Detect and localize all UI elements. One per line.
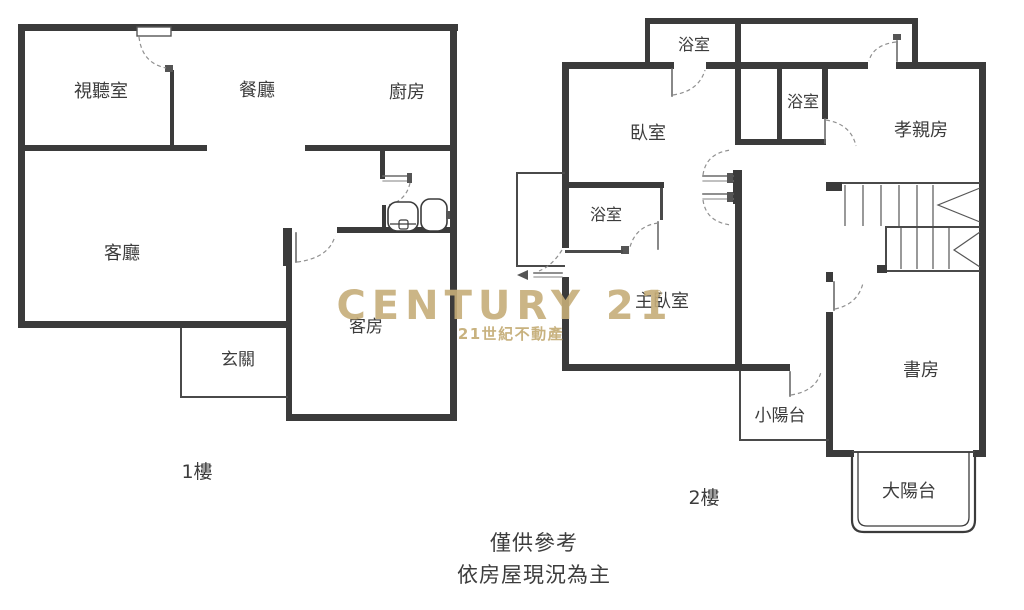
floor1-plan: 視聽室 餐廳 廚房 客廳 客房 玄關 1樓 [18,24,458,483]
door-arc [826,120,856,146]
bay-wall [516,172,565,174]
door-jamb [407,173,412,183]
wall [826,312,833,457]
stair-edge [877,270,980,272]
door-arc [297,236,335,262]
room-label-bathroom-middle: 浴室 [787,92,819,111]
room-label-large-balcony: 大陽台 [882,481,936,502]
watermark-brand: CENTURY 21 [336,283,673,329]
door-arc [539,250,562,271]
room-label-parents-room: 孝親房 [894,120,948,141]
disclaimer-line1: 僅供參考 [490,531,578,555]
wall [562,62,674,69]
door-jamb [893,34,901,40]
wall [735,18,741,145]
wall [735,200,742,371]
wall [706,62,868,69]
sink-icon [388,202,418,231]
floor1-doors [137,27,412,262]
stair-stub [877,265,887,273]
door-leaf [137,27,171,36]
floor2-walls [516,18,986,457]
room-label-kitchen: 廚房 [389,81,425,103]
wall [822,62,828,119]
door-arc [869,42,896,61]
watermark-registered-mark: ® [653,289,663,300]
room-label-bedroom: 臥室 [630,123,666,144]
bay-wall [516,265,565,267]
stair-edge [885,226,980,228]
room-label-bathroom-top: 浴室 [678,35,710,54]
stair-steps [845,185,933,226]
door-arc [835,283,863,309]
floorplan-page: 視聽室 餐廳 廚房 客廳 客房 玄關 1樓 [0,0,1024,610]
door-arc [703,200,731,225]
wall-door-stub [826,272,833,282]
stair-edge [826,182,980,184]
toilet-icon [446,211,450,219]
wall [645,18,650,67]
balcony-wall [739,371,741,441]
door-jamb [727,173,733,183]
bathroom-wall [565,250,623,253]
wall [896,62,986,69]
room-label-study: 書房 [903,360,939,381]
floorplan-drawing: 視聽室 餐廳 廚房 客廳 客房 玄關 1樓 [0,0,1024,610]
foyer-wall [180,396,288,398]
disclaimer-line2: 依房屋現況為主 [457,563,611,587]
floor2-title: 2樓 [688,487,719,509]
wall [562,364,790,371]
wall [645,18,918,24]
door-arc [139,37,166,68]
wall [562,62,569,248]
wall [912,18,918,67]
wall [170,70,174,148]
wall [826,450,854,457]
wall [286,414,457,421]
door-arc [703,150,731,175]
wall-door-stub [380,148,385,179]
bathroom-fixtures [388,199,450,231]
room-label-small-balcony: 小陽台 [755,406,806,426]
wall [18,24,25,328]
bathroom-wall [660,188,663,220]
foyer-wall [180,328,182,398]
wall [18,145,207,151]
floor1-title: 1樓 [181,461,212,483]
door-jamb [165,65,173,72]
watermark: CENTURY 21 ® 21世紀不動產 [336,283,673,343]
door-jamb [727,192,733,202]
room-label-bathroom-master: 浴室 [590,205,622,224]
bay-wall [516,172,518,267]
room-label-av-room: 視聽室 [74,81,128,102]
stair-stub [826,182,842,191]
wall-door-stub [382,205,386,231]
floor2-doors [517,41,897,396]
balcony-threshold [852,451,975,453]
room-label-dining-room: 餐廳 [239,80,275,101]
wall-door-stub [283,228,292,266]
wall [18,24,458,31]
stair-direction-arrow [954,232,980,267]
door-arc [673,70,705,95]
room-label-foyer: 玄關 [221,350,255,370]
stair-steps [901,228,949,269]
stair-direction-arrow [938,188,980,222]
wall [979,62,986,457]
wall [777,62,782,145]
wall [450,24,457,421]
floor1-labels: 視聽室 餐廳 廚房 客廳 客房 玄關 1樓 [74,80,425,483]
watermark-subtitle: 21世紀不動產 [458,325,564,343]
door-swing-arrow [517,270,528,280]
floor2-plan: 浴室 臥室 浴室 孝親房 浴室 主臥室 書房 小陽台 大陽台 2樓 [516,18,986,532]
staircase [826,182,980,273]
disclaimer: 僅供參考 依房屋現況為主 [457,531,611,587]
room-label-living-room: 客廳 [104,243,140,264]
wall [18,321,292,328]
balcony-wall [739,439,829,441]
wall [562,182,664,188]
door-arc [630,223,658,247]
toilet-icon [421,199,447,231]
wall-door-stub [733,170,742,204]
door-arc [791,372,821,395]
